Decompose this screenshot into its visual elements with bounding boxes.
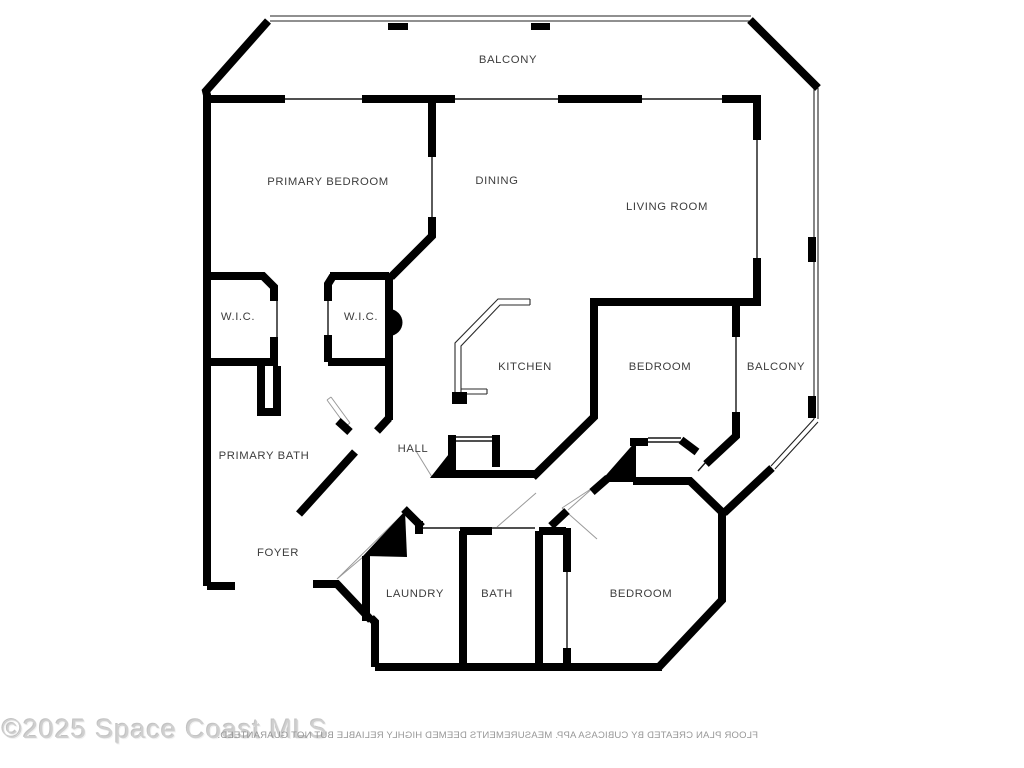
- hall-closet-door-leaf: [430, 450, 452, 478]
- disclaimer-text-mirrored: FLOOR PLAN CREATED BY CUBICASA APP. MEAS…: [240, 730, 758, 741]
- room-label-balcony-side: BALCONY: [747, 361, 805, 373]
- wic-door-bump: [389, 309, 403, 336]
- room-label-bedroom-bottom: BEDROOM: [610, 588, 673, 600]
- railing-post-left: [388, 23, 408, 30]
- entry-door-leaf: [363, 511, 407, 557]
- railing-post-right: [531, 23, 550, 30]
- floor-plan-canvas: BALCONY PRIMARY BEDROOM DINING LIVING RO…: [0, 0, 1024, 768]
- room-label-balcony-top: BALCONY: [479, 54, 537, 66]
- room-label-kitchen: KITCHEN: [498, 361, 552, 373]
- room-label-primary-bedroom: PRIMARY BEDROOM: [267, 176, 389, 188]
- room-label-foyer: FOYER: [257, 547, 299, 559]
- room-label-wic-1: W.I.C.: [221, 311, 255, 323]
- room-label-hall: HALL: [398, 443, 429, 455]
- kitchen-counter: [455, 299, 530, 398]
- room-label-laundry: LAUNDRY: [386, 588, 444, 600]
- room-label-primary-bath: PRIMARY BATH: [219, 450, 310, 462]
- walls-layer: [203, 20, 818, 668]
- room-label-living-room: LIVING ROOM: [626, 201, 708, 213]
- floor-plan-page: { "title": "Condominium floor plan", "wa…: [0, 0, 1024, 768]
- room-label-bedroom-middle: BEDROOM: [629, 361, 692, 373]
- room-label-wic-2: W.I.C.: [344, 311, 378, 323]
- room-label-bath: BATH: [481, 588, 513, 600]
- room-labels: BALCONY PRIMARY BEDROOM DINING LIVING RO…: [219, 54, 805, 600]
- room-label-dining: DINING: [475, 175, 518, 187]
- bedroom-door-leaf: [600, 441, 636, 482]
- kitchen-counter-end: [452, 392, 467, 404]
